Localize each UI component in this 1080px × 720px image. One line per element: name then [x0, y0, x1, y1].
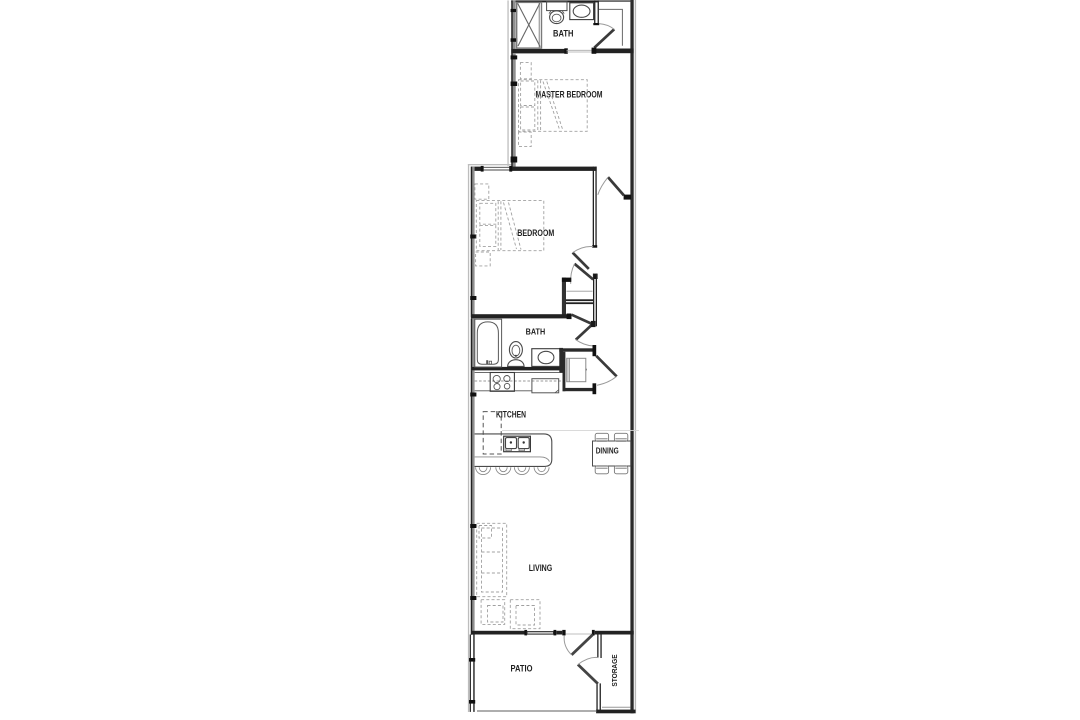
- svg-text:PATIO: PATIO: [511, 664, 533, 674]
- svg-text:KITCHEN: KITCHEN: [496, 409, 526, 419]
- svg-text:BATH: BATH: [526, 327, 546, 336]
- svg-text:DINING: DINING: [596, 447, 619, 456]
- svg-text:LIVING: LIVING: [529, 563, 553, 573]
- svg-text:MASTER BEDROOM: MASTER BEDROOM: [536, 89, 603, 99]
- svg-text:STORAGE: STORAGE: [610, 654, 619, 686]
- svg-text:BEDROOM: BEDROOM: [517, 227, 554, 238]
- svg-text:BATH: BATH: [553, 28, 573, 38]
